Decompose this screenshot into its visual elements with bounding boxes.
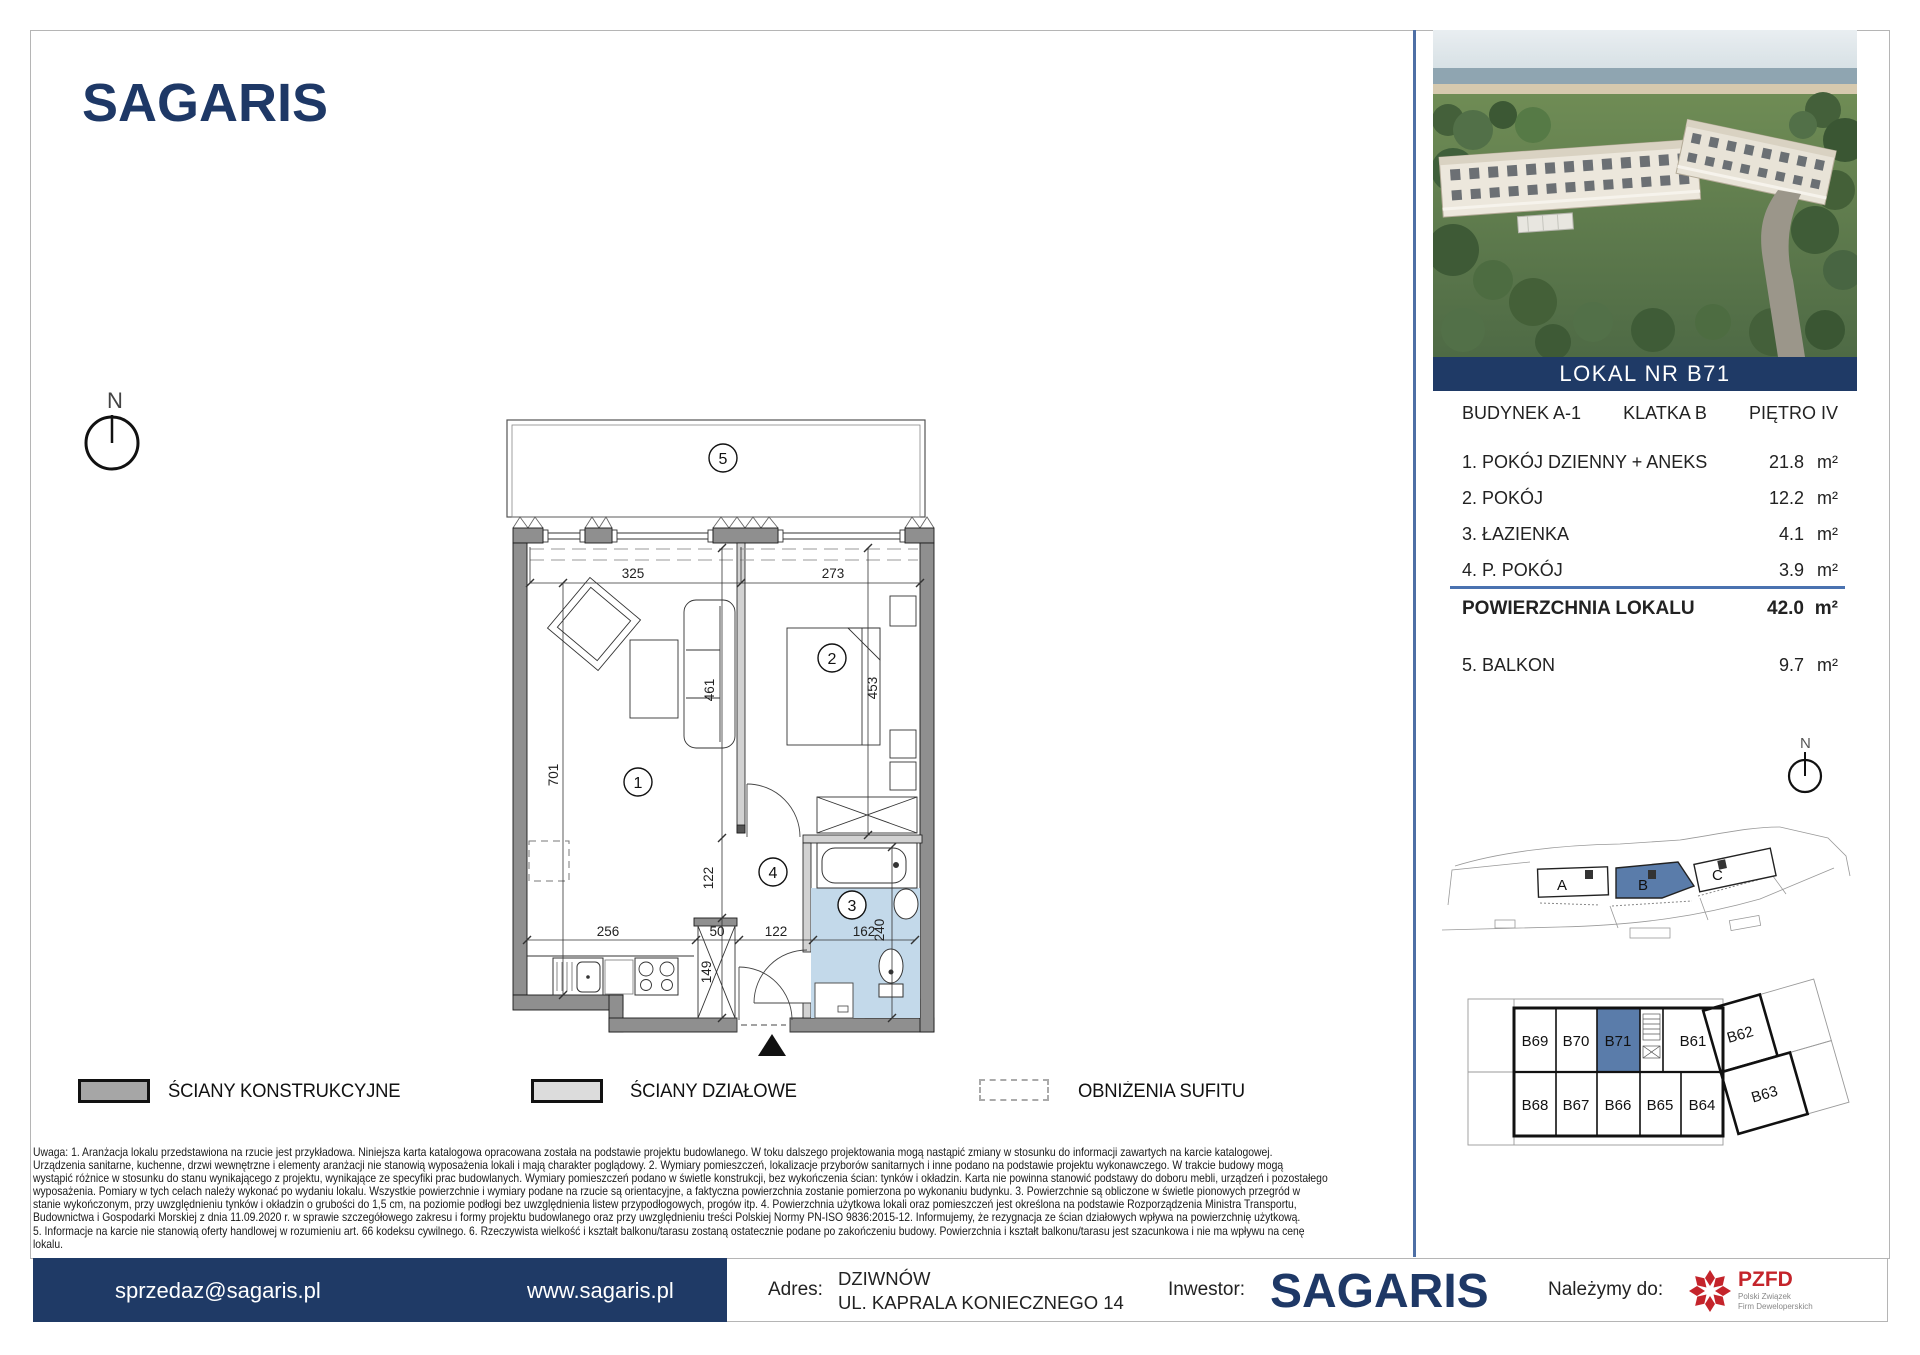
total-unit: m² (1804, 598, 1838, 620)
pzfd-line1: Polski Związek (1738, 1292, 1792, 1301)
room-area: 12.2 (1750, 488, 1804, 509)
floor-unit-map: B62 B63 B69 B70 B71 B61 B68 B67 (1455, 970, 1855, 1150)
unit-b64-label: B64 (1689, 1097, 1716, 1114)
room-unit: m² (1804, 524, 1838, 545)
room-name: 3. ŁAZIENKA (1462, 524, 1750, 545)
total-row: POWIERZCHNIA LOKALU 42.0 m² (1462, 598, 1838, 620)
footer-address-label: Adres: (768, 1279, 823, 1301)
kitchen (527, 956, 694, 995)
building-label: BUDYNEK A-1 (1462, 403, 1581, 424)
entrance-arrow (758, 1034, 786, 1056)
room-name: 4. P. POKÓJ (1462, 560, 1750, 581)
disclaimer-line: stanie wykończonym, przy uwzględnieniu t… (33, 1198, 1264, 1211)
room-area: 3.9 (1750, 560, 1804, 581)
legend-partition-swatch (531, 1079, 603, 1103)
room-area: 21.8 (1750, 452, 1804, 473)
dim-256: 256 (597, 924, 620, 939)
disclaimer-line: Budownictwa i Gospodarki Morskiej z dnia… (33, 1211, 1264, 1224)
panel-divider (1413, 30, 1416, 1257)
staircase-label: KLATKA B (1623, 403, 1707, 424)
balcony-row: 5. BALKON 9.7 m² (1462, 655, 1838, 676)
room-2-number: 2 (828, 651, 837, 668)
washbasin (894, 889, 918, 919)
building-b-label: B (1638, 877, 1648, 894)
footer-investor-label: Inwestor: (1168, 1279, 1245, 1301)
total-label: POWIERZCHNIA LOKALU (1462, 598, 1750, 620)
disclaimer-line: Uwaga: 1. Aranżacja lokalu przedstawiona… (33, 1146, 1264, 1159)
room-3-number: 3 (848, 898, 857, 915)
room-name: 2. POKÓJ (1462, 488, 1750, 509)
unit-b61-label: B61 (1680, 1033, 1707, 1050)
room-4-number: 4 (769, 865, 778, 882)
legend-structural-swatch (78, 1079, 150, 1103)
unit-b71-label: B71 (1605, 1033, 1632, 1050)
legend-structural-label: ŚCIANY KONSTRUKCYJNE (168, 1080, 400, 1104)
pzfd-abbr: PZFD (1738, 1268, 1793, 1291)
pzfd-logo: PZFD Polski Związek Firm Deweloperskich (1688, 1264, 1858, 1318)
room-1-number: 1 (634, 775, 643, 792)
room-area: 4.1 (1750, 524, 1804, 545)
compass-panel-label: N (1800, 735, 1811, 752)
dim-122v: 122 (701, 867, 716, 890)
compass-panel: N (1778, 732, 1838, 802)
living-furniture (548, 578, 735, 748)
footer-investor-logo: SAGARIS (1270, 1264, 1489, 1319)
disclaimer-line: wyposażenia. Pomiary w tych celach należ… (33, 1185, 1264, 1198)
room-row-4: 4. P. POKÓJ 3.9 m² (1462, 560, 1838, 581)
compass-main-label: N (107, 388, 123, 413)
dim-453: 453 (865, 677, 880, 700)
room-row-1: 1. POKÓJ DZIENNY + ANEKS 21.8 m² (1462, 452, 1838, 473)
balcony-name: 5. BALKON (1462, 655, 1750, 676)
building-a-label: A (1557, 877, 1567, 894)
legend-partition-label: ŚCIANY DZIAŁOWE (630, 1080, 797, 1104)
unit-labels: B69 B70 B71 B61 B68 B67 B66 B65 B64 (1522, 1033, 1716, 1114)
dim-240: 240 (872, 919, 887, 942)
pzfd-line2: Firm Deweloperskich (1738, 1302, 1813, 1311)
dim-149: 149 (699, 961, 714, 984)
dim-273: 273 (822, 566, 845, 581)
dim-50: 50 (709, 924, 724, 939)
unit-b66-label: B66 (1605, 1097, 1632, 1114)
footer-address: DZIWNÓW UL. KAPRALA KONIECZNEGO 14 (838, 1267, 1124, 1315)
room-5-number: 5 (719, 451, 728, 468)
building-c (1694, 848, 1776, 892)
building-a (1538, 867, 1609, 897)
footer-address-line1: DZIWNÓW (838, 1267, 1124, 1291)
unit-banner-label: LOKAL NR B71 (1559, 361, 1730, 387)
disclaimer-line: lokalu. (33, 1238, 1264, 1251)
ceiling-lowering-lines (530, 549, 918, 560)
disclaimer-line: wystąpić różnice w stosunku do stanu wyn… (33, 1172, 1264, 1185)
unit-b70-label: B70 (1563, 1033, 1590, 1050)
brand-logo: SAGARIS (82, 72, 328, 134)
floor-label: PIĘTRO IV (1749, 403, 1838, 424)
footer-website[interactable]: www.sagaris.pl (527, 1278, 674, 1304)
stairwell (1643, 1014, 1660, 1058)
legend-ceiling-swatch (979, 1079, 1049, 1101)
room-unit: m² (1804, 488, 1838, 509)
bedroom-furniture (787, 596, 916, 790)
floor-plan: 325 273 701 461 453 256 50 122 162 122 1… (400, 395, 1000, 1070)
unit-b65-label: B65 (1647, 1097, 1674, 1114)
unit-b69-label: B69 (1522, 1033, 1549, 1050)
unit-banner: LOKAL NR B71 (1433, 357, 1857, 391)
bathtub (817, 843, 917, 888)
wall-hatch (513, 517, 934, 528)
disclaimer-line: Urządzenia sanitarne, kuchenne, drzwi we… (33, 1159, 1264, 1172)
unit-b67-label: B67 (1563, 1097, 1590, 1114)
dim-122h: 122 (765, 924, 788, 939)
catalog-card-page: SAGARIS N (0, 0, 1920, 1355)
unit-info-row: BUDYNEK A-1 KLATKA B PIĘTRO IV (1462, 403, 1838, 424)
dim-325: 325 (622, 566, 645, 581)
balcony-area: 9.7 (1750, 655, 1804, 676)
compass-main: N (60, 370, 170, 480)
footer-member-label: Należymy do: (1548, 1279, 1663, 1301)
dim-701: 701 (546, 764, 561, 787)
pzfd-flower-icon (1689, 1270, 1731, 1312)
building-c-label: C (1712, 867, 1723, 884)
building-photo (1433, 30, 1857, 357)
footer-address-line2: UL. KAPRALA KONIECZNEGO 14 (838, 1291, 1124, 1315)
room-name: 1. POKÓJ DZIENNY + ANEKS (1462, 452, 1750, 473)
room-row-2: 2. POKÓJ 12.2 m² (1462, 488, 1838, 509)
toilet (879, 949, 903, 997)
disclaimer-line: 5. Informacje na karcie nie stanowią ofe… (33, 1225, 1264, 1238)
room-row-3: 3. ŁAZIENKA 4.1 m² (1462, 524, 1838, 545)
wardrobe-bedroom (817, 797, 917, 833)
room-unit: m² (1804, 452, 1838, 473)
balcony-unit: m² (1804, 655, 1838, 676)
site-map: A B C (1433, 825, 1857, 947)
building-b (1616, 862, 1694, 898)
room-unit: m² (1804, 560, 1838, 581)
dim-461: 461 (702, 679, 717, 702)
total-divider (1450, 586, 1845, 589)
legend-ceiling-label: OBNIŻENIA SUFITU (1078, 1080, 1245, 1104)
footer-email[interactable]: sprzedaz@sagaris.pl (115, 1278, 321, 1304)
doors (737, 784, 811, 1032)
disclaimer-block: Uwaga: 1. Aranżacja lokalu przedstawiona… (33, 1146, 1408, 1254)
total-area: 42.0 (1750, 598, 1804, 620)
unit-b68-label: B68 (1522, 1097, 1549, 1114)
